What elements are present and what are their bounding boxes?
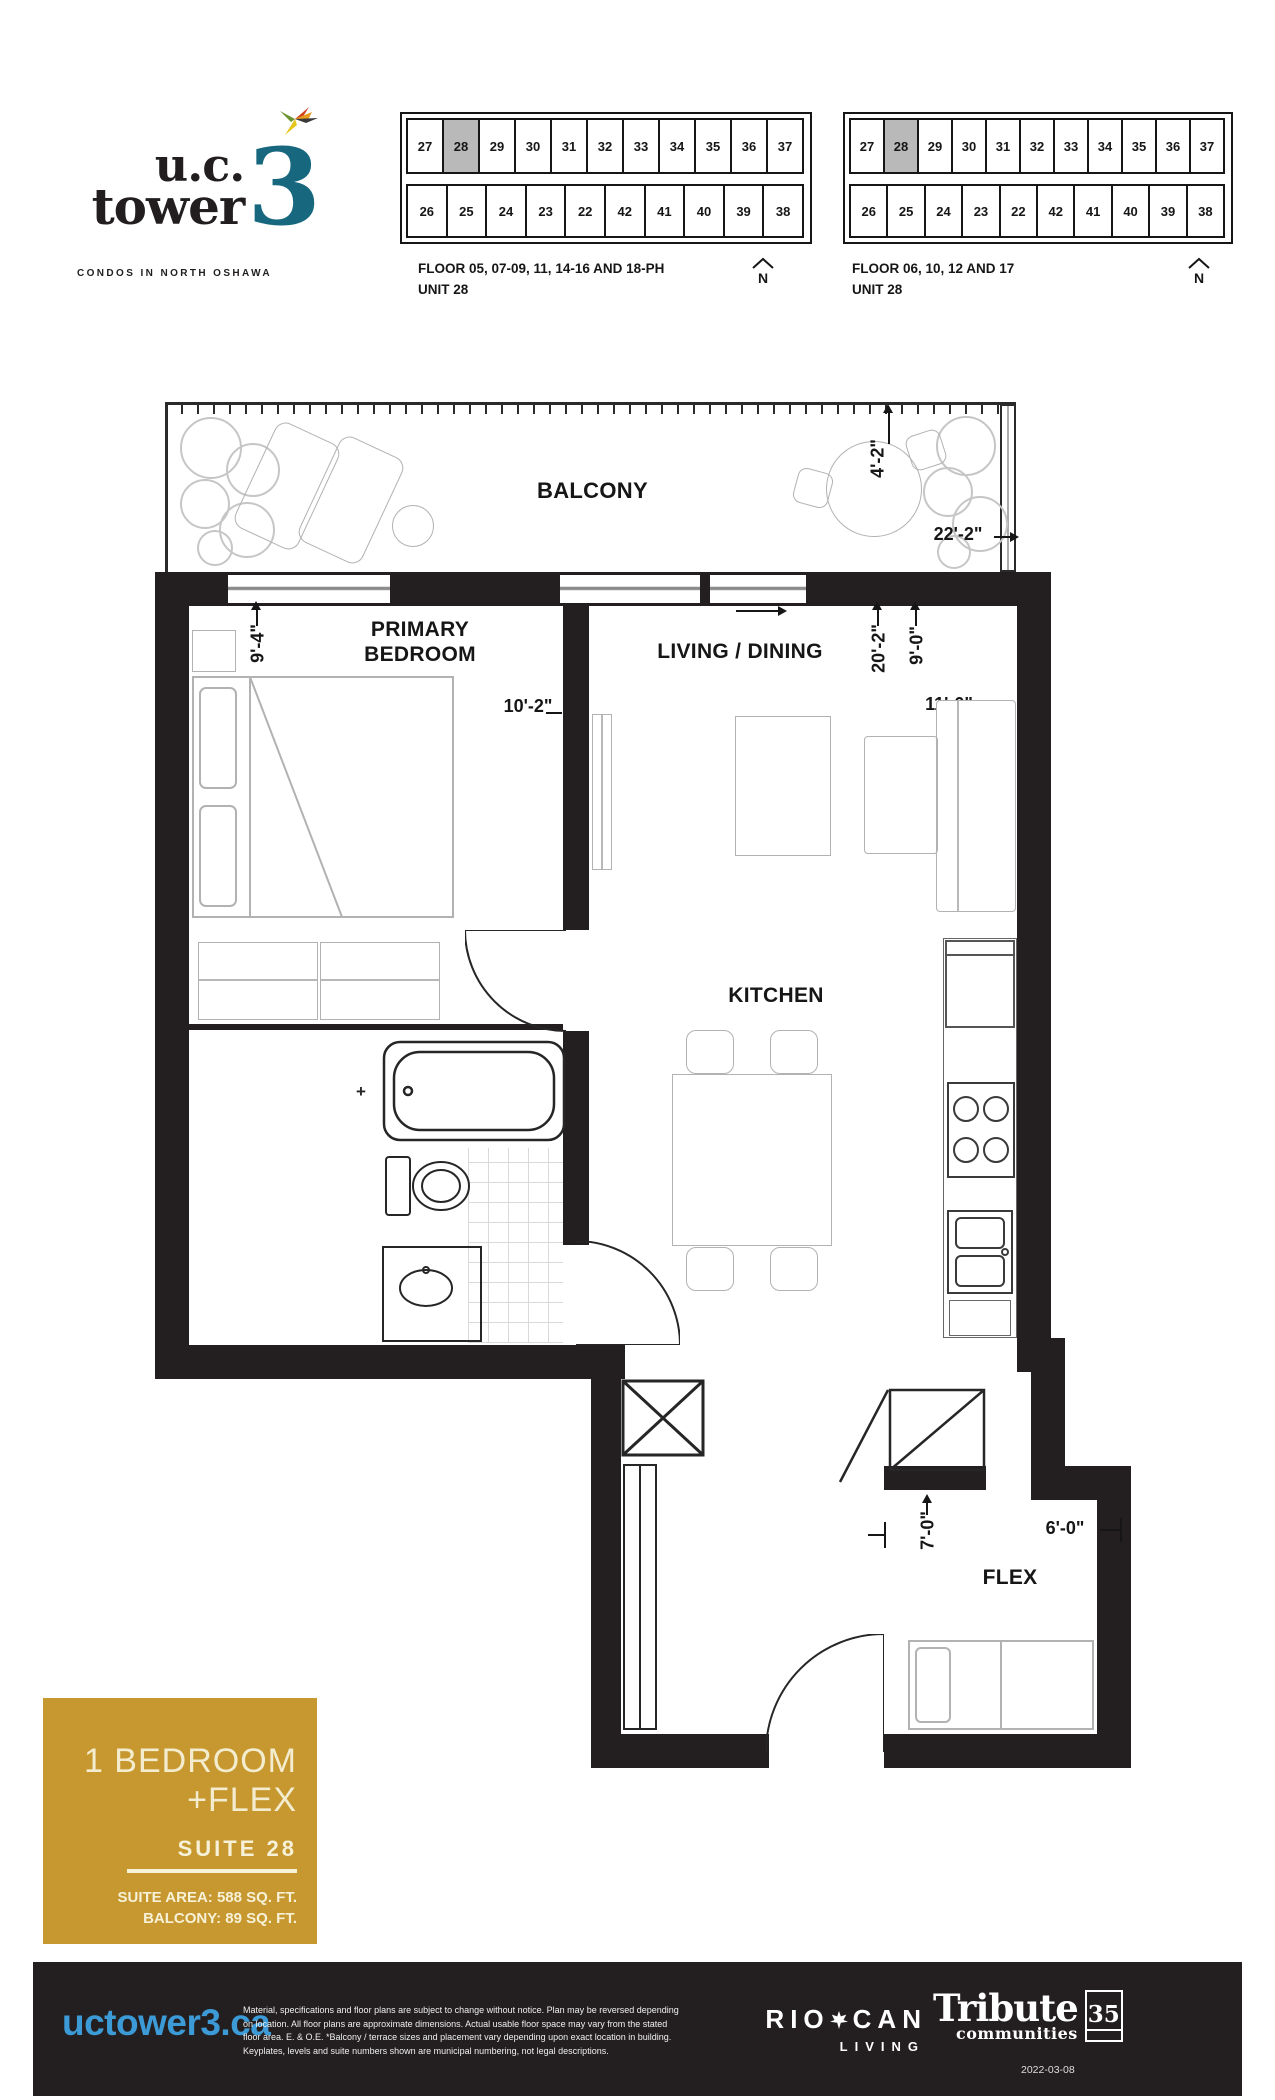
logo-number-3: 3 — [247, 145, 320, 230]
riocan-living: LIVING — [755, 2039, 927, 2054]
wall-segment — [1017, 1338, 1065, 1372]
coffee-table — [735, 716, 831, 856]
wall-segment — [884, 1734, 1131, 1768]
wall-segment — [591, 1379, 621, 1768]
dim-line — [926, 1503, 928, 1515]
keyplate-unit: 29 — [478, 118, 516, 174]
shaft — [621, 1379, 705, 1457]
dim-balcony-width: 22'-2" — [922, 524, 994, 545]
maple-leaf-icon — [830, 2011, 848, 2029]
keyplate-unit: 32 — [1019, 118, 1055, 174]
riocan-can: CAN — [853, 2004, 927, 2035]
legal-line: Material, specifications and floor plans… — [243, 2004, 733, 2018]
keyplate-unit: 41 — [644, 184, 686, 238]
tribute-badge-number: 35 — [1086, 2001, 1122, 2031]
keyplate-unit: 42 — [1036, 184, 1075, 238]
keyplate-unit: 22 — [999, 184, 1038, 238]
dim-line — [884, 1522, 886, 1548]
door-arc-entry — [766, 1634, 884, 1752]
dim-flex-width: 6'-0" — [1032, 1518, 1098, 1539]
wall-segment — [155, 572, 189, 1379]
dim-line — [915, 610, 917, 626]
fridge — [945, 940, 1015, 1028]
stove — [947, 1082, 1015, 1178]
website-link[interactable]: uctower3.ca — [62, 2002, 270, 2044]
keyplate-2-unit: UNIT 28 — [852, 280, 1014, 301]
keyplate-unit: 25 — [446, 184, 488, 238]
sink-vanity — [382, 1246, 482, 1342]
keyplate-unit: 39 — [723, 184, 765, 238]
slider-direction-line — [736, 610, 780, 612]
dim-flex-depth: 7'-0" — [918, 1499, 939, 1563]
room-label-kitchen: KITCHEN — [700, 984, 852, 1009]
keyplate-unit: 33 — [622, 118, 660, 174]
legal-line: floor area. E. & O.E. *Balcony / terrace… — [243, 2031, 733, 2045]
room-label-primary-bedroom: PRIMARY BEDROOM — [345, 618, 495, 668]
keyplate-unit-highlighted: 28 — [442, 118, 480, 174]
dim-bedroom-width: 9'-4" — [248, 612, 269, 676]
keyplate-1-unit: UNIT 28 — [418, 280, 664, 301]
dim-line — [256, 610, 258, 626]
wall-segment — [1097, 1466, 1131, 1768]
kitchen-sink — [947, 1210, 1013, 1294]
keyplate-unit: 31 — [550, 118, 588, 174]
keyplate-2-caption: FLOOR 06, 10, 12 AND 17 UNIT 28 — [852, 259, 1014, 301]
wall-segment — [1017, 572, 1051, 1372]
keyplate-unit: 41 — [1073, 184, 1112, 238]
wall-segment — [563, 1031, 589, 1245]
brand-tagline: CONDOS IN NORTH OSHAWA — [77, 268, 272, 279]
keyplate-unit: 36 — [1155, 118, 1191, 174]
bathtub — [382, 1040, 566, 1142]
wall-segment — [591, 1734, 769, 1768]
riocan-rio: RIO — [765, 2004, 829, 2035]
hummingbird-icon — [276, 103, 318, 139]
keyplate-unit: 30 — [514, 118, 552, 174]
keyplate-unit: 34 — [1087, 118, 1123, 174]
logo-line-2: tower — [92, 185, 245, 229]
keyplate-unit: 24 — [485, 184, 527, 238]
dim-arrow — [1010, 532, 1019, 542]
room-label-balcony: BALCONY — [510, 478, 675, 504]
north-label: N — [1186, 271, 1212, 285]
room-label-living-dining: LIVING / DINING — [630, 640, 850, 665]
patio-side-table — [392, 505, 434, 547]
bed — [192, 676, 454, 918]
dim-line — [1100, 1529, 1120, 1531]
dining-table — [672, 1074, 832, 1246]
legal-line: on location. All floor plans are approxi… — [243, 2018, 733, 2032]
flex-daybed — [908, 1640, 1094, 1730]
keyplate-unit: 36 — [730, 118, 768, 174]
toilet — [384, 1150, 476, 1222]
north-arrow-icon: N — [1186, 257, 1212, 285]
suite-balcony-area: BALCONY: 89 SQ. FT. — [143, 1910, 297, 1927]
sofa-chaise — [864, 736, 938, 854]
door-arc-bathroom — [576, 1241, 680, 1345]
suite-info-box: 1 BEDROOM +FLEX SUITE 28 SUITE AREA: 588… — [43, 1698, 317, 1944]
riocan-living-logo: RIO CAN LIVING — [755, 2004, 927, 2054]
dining-chair — [770, 1247, 818, 1291]
keyplate-unit: 27 — [849, 118, 885, 174]
keyplate-unit: 37 — [1189, 118, 1225, 174]
keyplate-1-top-row: 27 28 29 30 31 32 33 34 35 36 37 — [408, 118, 804, 174]
hall-closet — [623, 1464, 657, 1730]
door-arc-bedroom — [465, 930, 568, 1033]
flex-closet-door — [834, 1386, 892, 1486]
bedroom-closet — [320, 942, 440, 1020]
dining-chair — [770, 1030, 818, 1074]
dim-line — [877, 610, 879, 626]
suite-underline — [127, 1869, 297, 1873]
dim-arrow — [910, 601, 920, 610]
plan-date: 2022-03-08 — [1021, 2064, 1075, 2076]
legal-text: Material, specifications and floor plans… — [243, 2004, 733, 2058]
keyplate-unit: 38 — [762, 184, 804, 238]
legal-line: Keyplates, levels and suite numbers show… — [243, 2045, 733, 2059]
keyplate-unit: 27 — [406, 118, 444, 174]
keyplate-unit: 38 — [1186, 184, 1225, 238]
keyplate-unit: 26 — [849, 184, 888, 238]
keyplate-unit: 40 — [683, 184, 725, 238]
keyplate-unit: 23 — [525, 184, 567, 238]
dishwasher — [949, 1300, 1011, 1336]
keyplate-unit: 29 — [917, 118, 953, 174]
floorplan-brochure-page: { "brand": { "name_line1": "u.c.", "name… — [0, 0, 1275, 2100]
north-arrow-icon: N — [750, 257, 776, 285]
keyplate-unit: 23 — [961, 184, 1000, 238]
keyplate-unit: 35 — [694, 118, 732, 174]
keyplate-unit: 30 — [951, 118, 987, 174]
keyplate-unit: 32 — [586, 118, 624, 174]
dim-line — [1120, 1518, 1122, 1542]
dim-line — [888, 412, 890, 444]
suite-type-line1: 1 BEDROOM — [84, 1742, 297, 1781]
tv-console — [592, 714, 612, 870]
keyplate-unit: 35 — [1121, 118, 1157, 174]
dim-arrow — [872, 601, 882, 610]
flex-closet — [888, 1388, 986, 1472]
tub-tap-symbol: + — [356, 1082, 366, 1102]
suite-number-label: SUITE 28 — [178, 1836, 297, 1862]
keyplate-unit: 25 — [886, 184, 925, 238]
keyplate-unit: 26 — [406, 184, 448, 238]
keyplate-1-floors: FLOOR 05, 07-09, 11, 14-16 AND 18-PH — [418, 259, 664, 280]
bathroom-tile-floor — [468, 1148, 563, 1343]
dim-living-width: 9'-0" — [907, 614, 928, 678]
footer: uctower3.ca Material, specifications and… — [33, 1962, 1242, 2096]
keyplate-unit: 42 — [604, 184, 646, 238]
window — [560, 572, 700, 606]
tribute-name: Tribute — [933, 1990, 1078, 2027]
wall-segment — [1031, 1372, 1065, 1500]
keyplate-unit: 39 — [1148, 184, 1187, 238]
keyplate-2-top-row: 27 28 29 30 31 32 33 34 35 36 37 — [851, 118, 1225, 174]
keyplate-unit-highlighted: 28 — [883, 118, 919, 174]
north-label: N — [750, 271, 776, 285]
keyplate-unit: 33 — [1053, 118, 1089, 174]
suite-type-line2: +FLEX — [187, 1781, 297, 1820]
keyplate-unit: 34 — [658, 118, 696, 174]
dim-line — [546, 712, 562, 714]
room-label-flex: FLEX — [960, 1566, 1060, 1591]
tribute-35-badge: 35 — [1085, 1990, 1123, 2042]
keyplate-2-floors: FLOOR 06, 10, 12 AND 17 — [852, 259, 1014, 280]
keyplate-2-bottom-row: 26 25 24 23 22 42 41 40 39 38 — [851, 184, 1225, 238]
wall-segment — [563, 606, 589, 930]
brand-logo: u.c. tower 3 CONDOS IN NORTH OSHAWA — [75, 103, 320, 281]
suite-area: SUITE AREA: 588 SQ. FT. — [118, 1889, 297, 1906]
keyplate-unit: 22 — [564, 184, 606, 238]
keyplate-unit: 31 — [985, 118, 1021, 174]
keyplate-2: 27 28 29 30 31 32 33 34 35 36 37 26 25 2… — [843, 112, 1233, 244]
balcony-slider-door — [710, 572, 806, 606]
wall-segment — [155, 1345, 625, 1379]
bedroom-closet — [198, 942, 318, 1020]
dim-arrow — [251, 601, 261, 610]
keyplate-1-caption: FLOOR 05, 07-09, 11, 14-16 AND 18-PH UNI… — [418, 259, 664, 301]
dining-chair — [686, 1247, 734, 1291]
dining-chair — [686, 1030, 734, 1074]
dim-living-length: 20'-2" — [869, 615, 890, 683]
sofa — [936, 700, 1016, 912]
keyplate-unit: 40 — [1111, 184, 1150, 238]
balcony-end-wall — [165, 402, 168, 572]
keyplate-unit: 24 — [924, 184, 963, 238]
keyplate-unit: 37 — [766, 118, 804, 174]
slider-direction-arrow — [778, 606, 787, 616]
keyplate-1: 27 28 29 30 31 32 33 34 35 36 37 26 25 2… — [400, 112, 812, 244]
bedside-table — [192, 630, 236, 672]
dim-arrow — [922, 1494, 932, 1503]
tribute-communities-logo: Tribute communities 35 — [933, 1990, 1123, 2043]
dim-balcony-depth: 4'-2" — [868, 427, 889, 491]
keyplate-1-bottom-row: 26 25 24 23 22 42 41 40 39 38 — [408, 184, 804, 238]
